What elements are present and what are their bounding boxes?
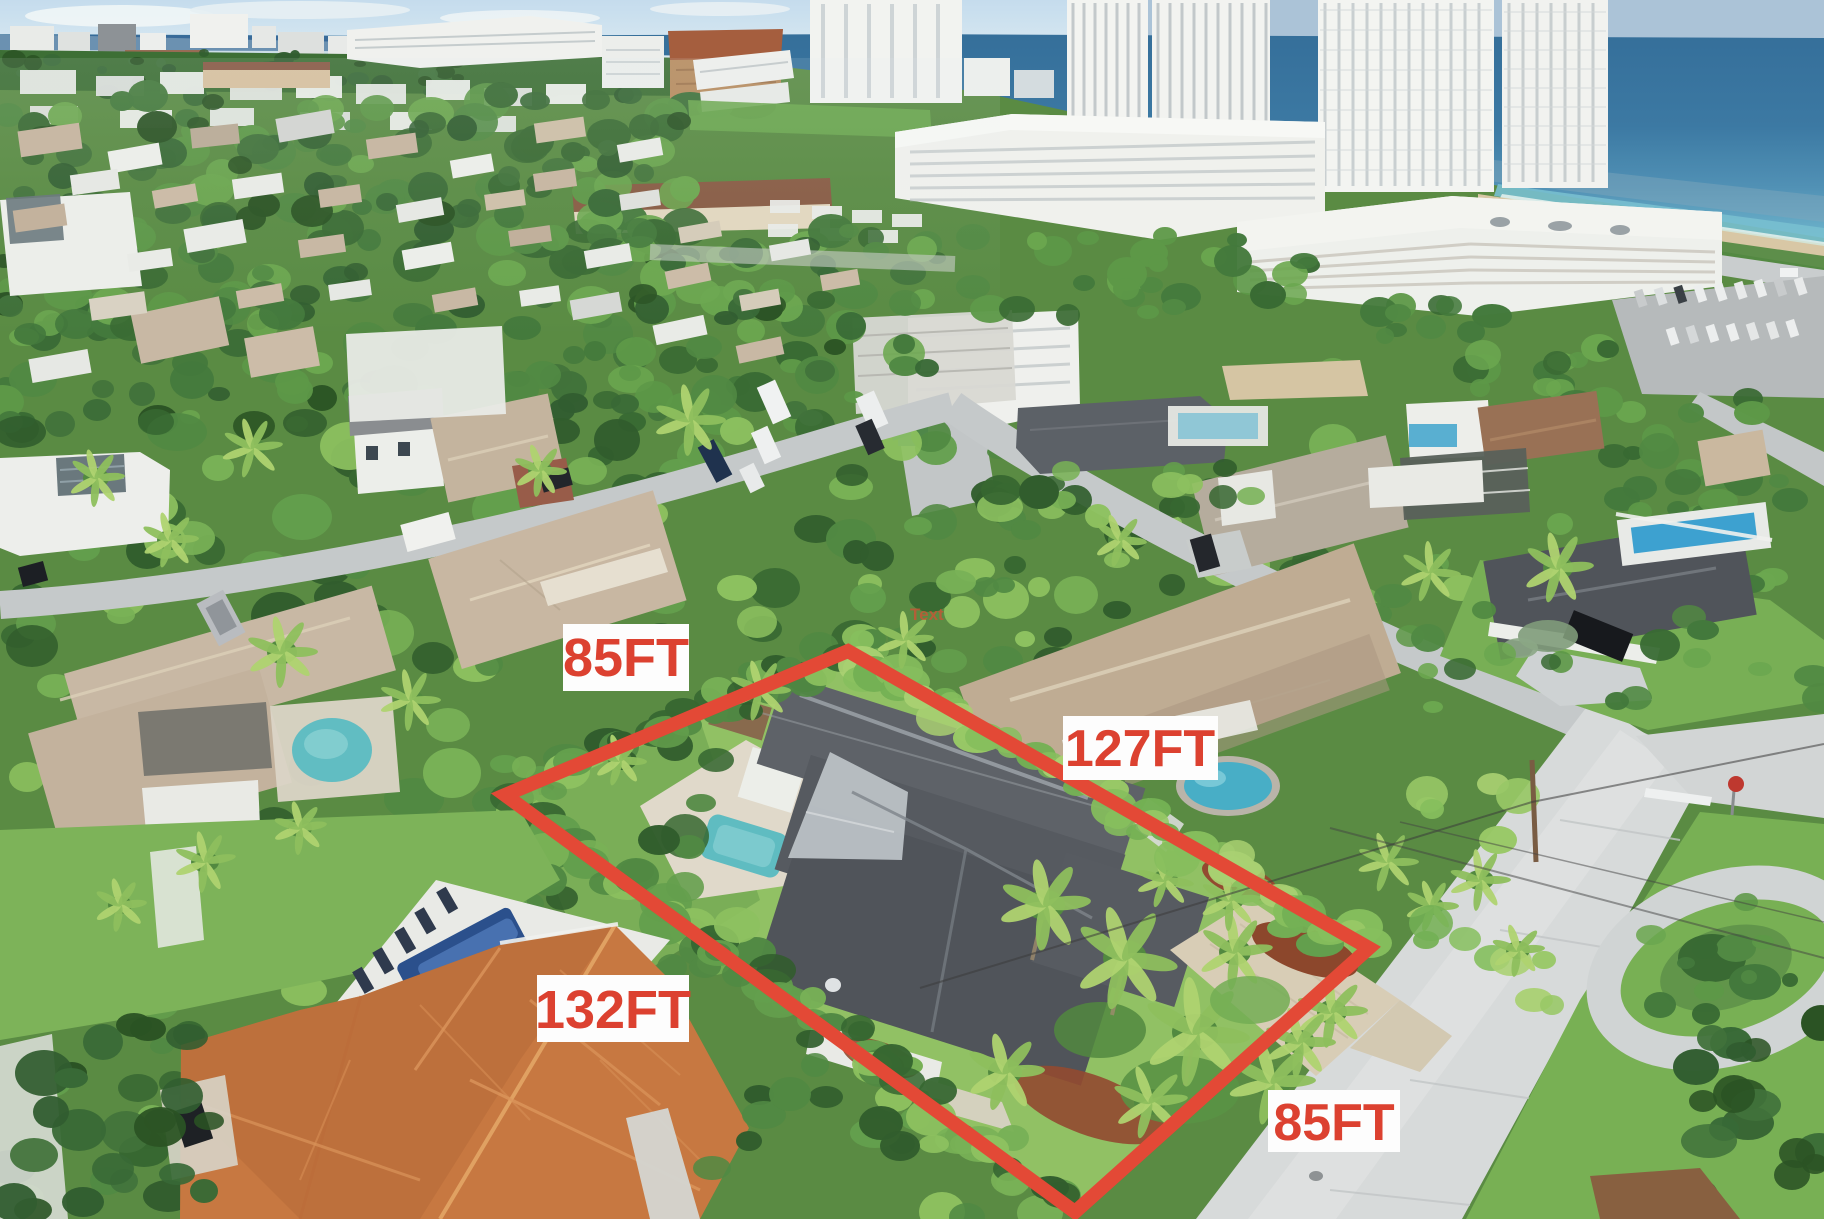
svg-text:85FT: 85FT [563,628,689,688]
svg-text:85FT: 85FT [1273,1094,1395,1152]
svg-text:127FT: 127FT [1065,720,1216,778]
svg-text:Text: Text [910,605,944,624]
svg-text:132FT: 132FT [535,980,691,1040]
